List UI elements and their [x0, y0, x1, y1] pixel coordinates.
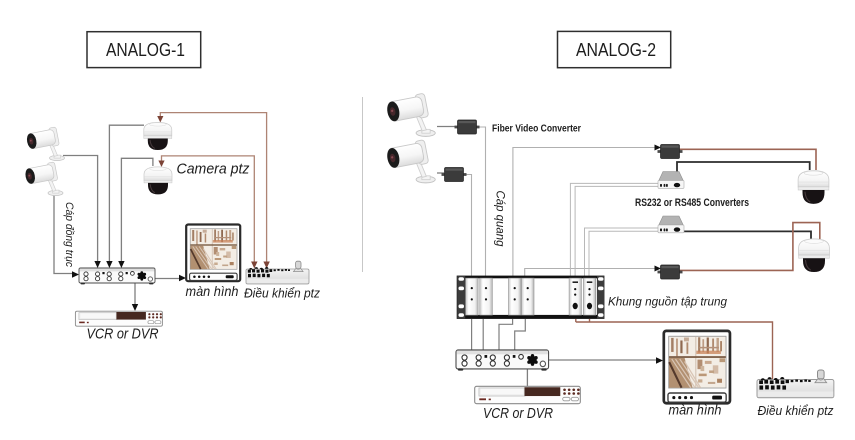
svg-text:RS232 or RS485 Converters: RS232 or RS485 Converters [635, 197, 749, 209]
svg-text:ANALOG-2: ANALOG-2 [576, 39, 656, 60]
svg-text:Fiber Video Converter: Fiber Video Converter [492, 123, 581, 135]
svg-text:Camera ptz: Camera ptz [177, 161, 250, 178]
svg-text:màn hình: màn hình [669, 402, 722, 418]
svg-text:Cáp quang: Cáp quang [494, 191, 506, 248]
svg-text:Cáp đồng trục: Cáp đồng trục [63, 202, 75, 267]
svg-text:ANALOG-1: ANALOG-1 [106, 39, 185, 60]
svg-text:màn hình: màn hình [186, 283, 239, 299]
svg-text:Khung nguồn tập trung: Khung nguồn tập trung [608, 295, 727, 309]
svg-text:VCR or DVR: VCR or DVR [87, 327, 159, 343]
svg-text:VCR or DVR: VCR or DVR [483, 406, 553, 422]
svg-text:Điều khiển ptz: Điều khiển ptz [244, 286, 320, 301]
svg-text:Điều khiển ptz: Điều khiển ptz [758, 403, 834, 418]
